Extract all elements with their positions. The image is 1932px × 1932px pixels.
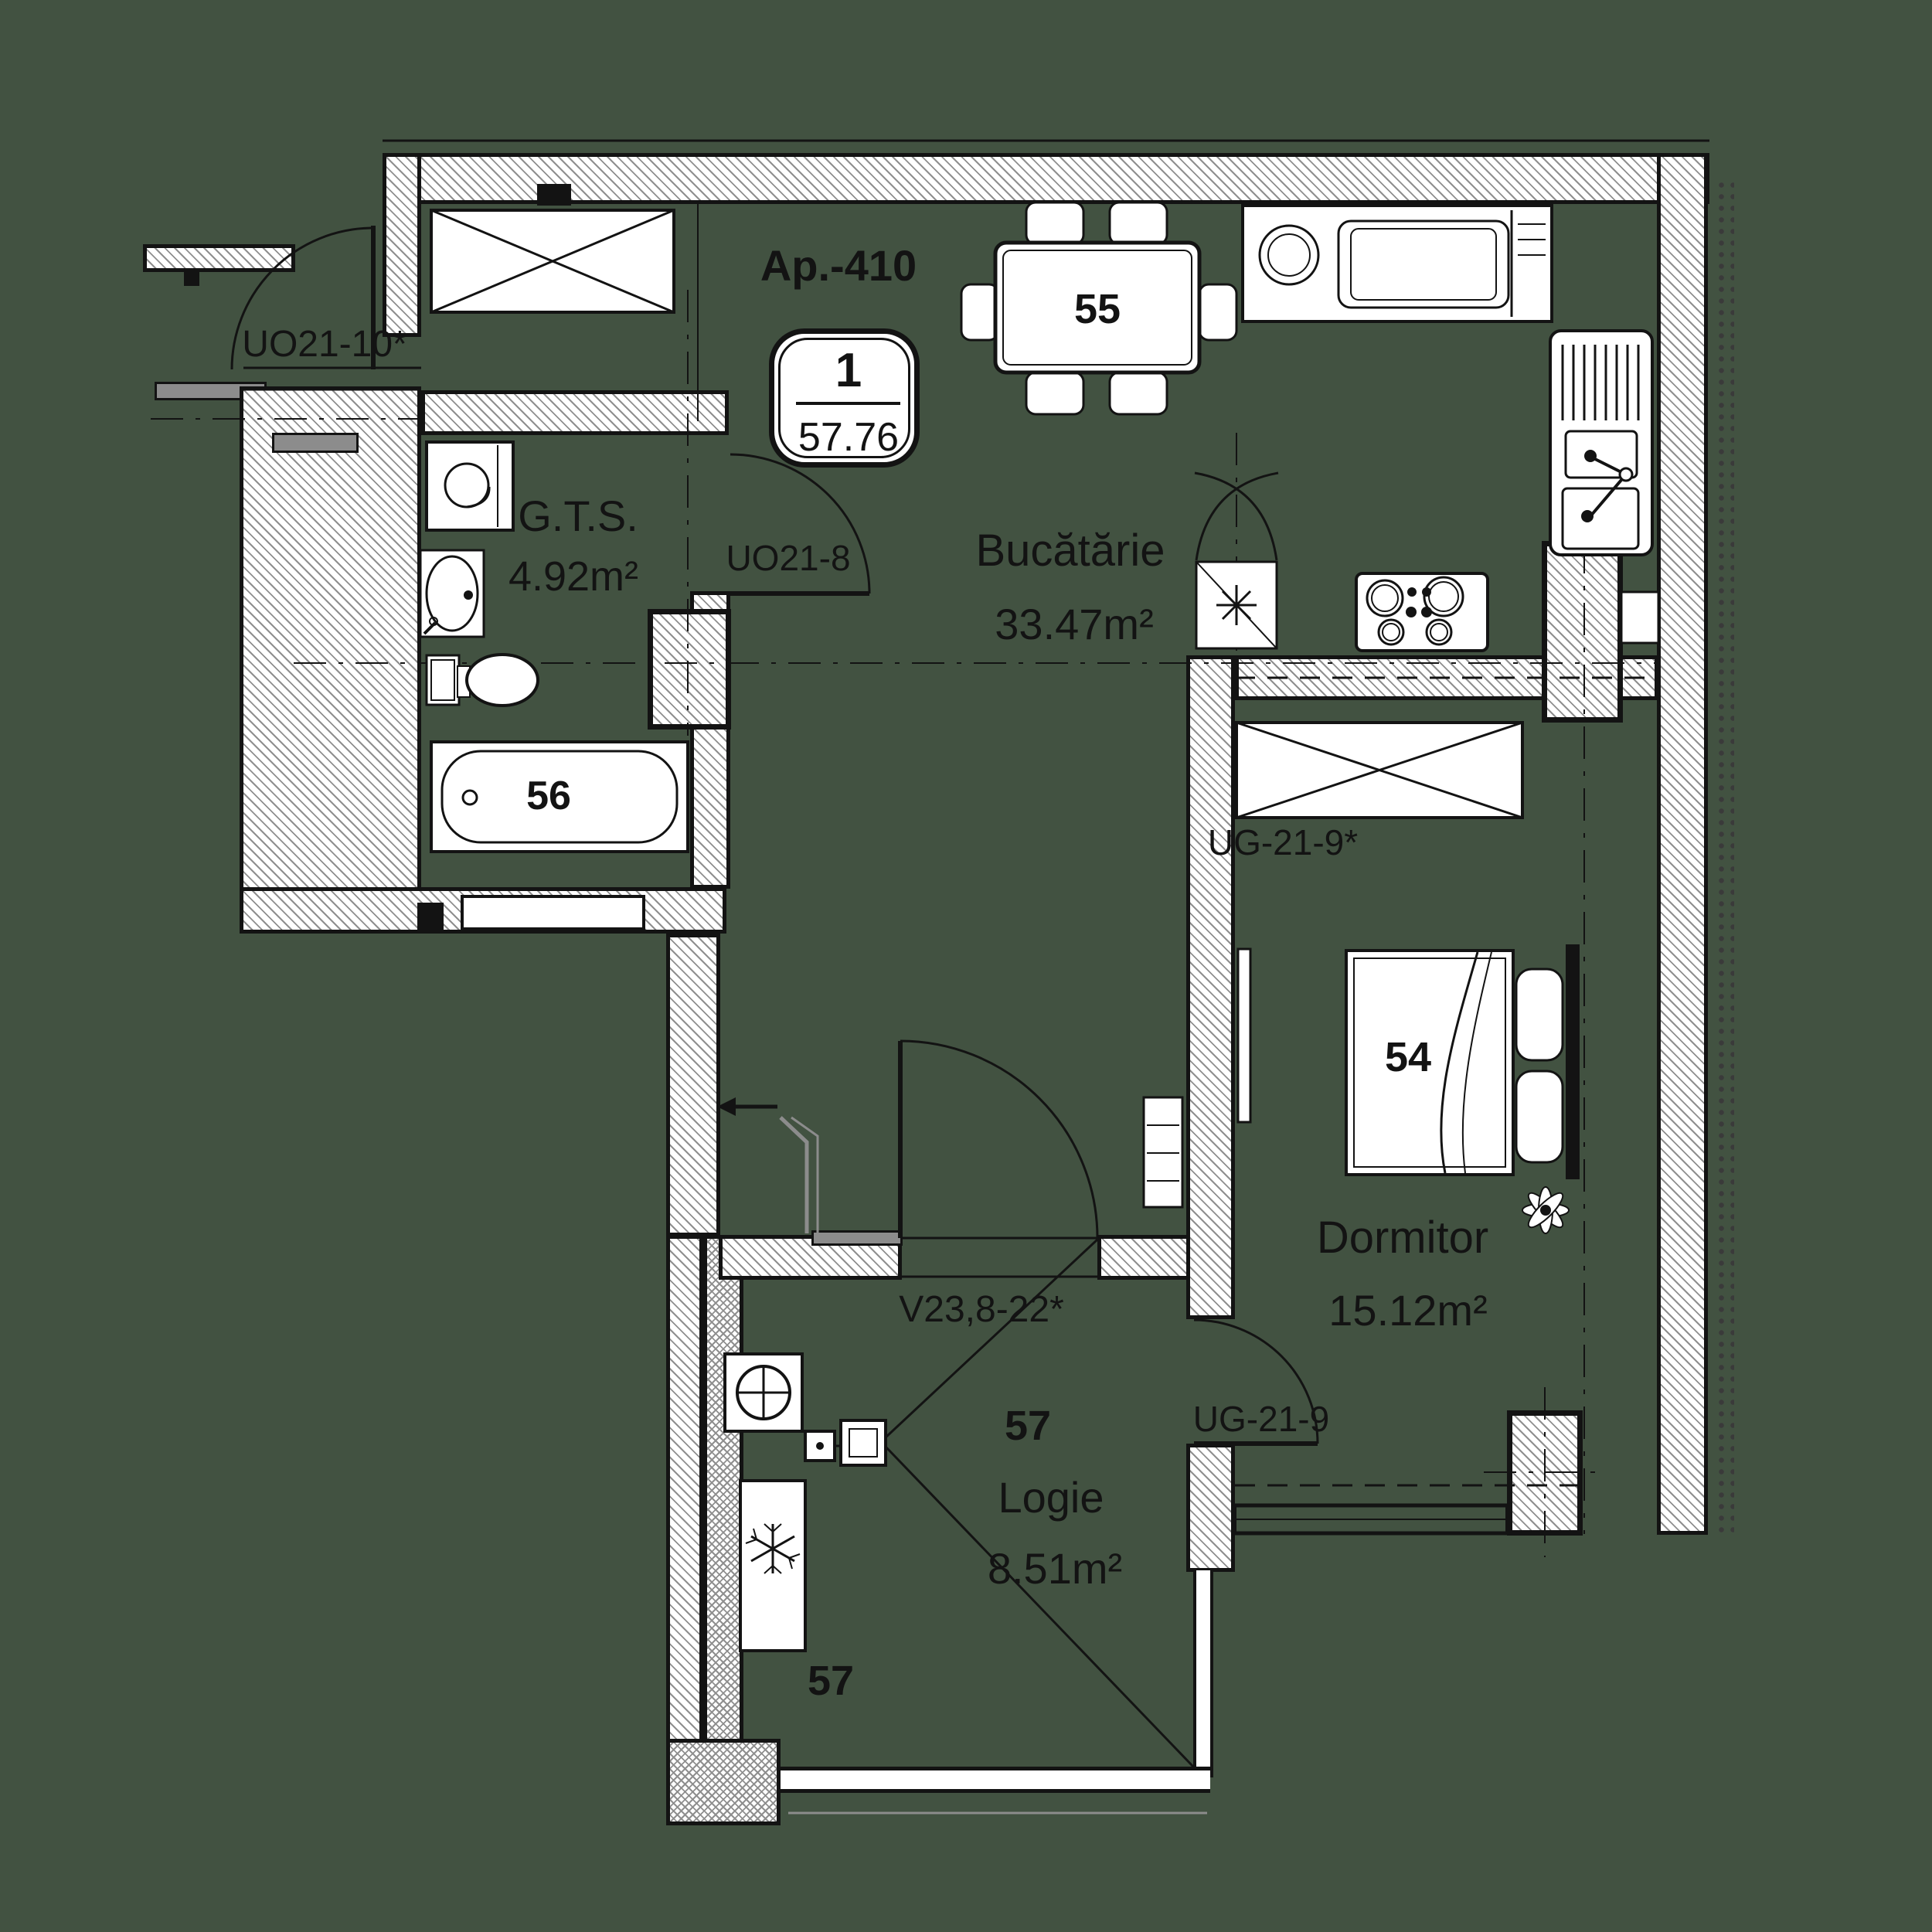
plan-linework	[0, 0, 1932, 1932]
kitchen-counter-sink	[1243, 206, 1552, 321]
entry-door	[232, 226, 421, 389]
room-gts-area: 4.92m²	[509, 556, 638, 597]
bedroom-wardrobe	[1236, 723, 1522, 818]
table-number: 55	[1074, 288, 1121, 330]
wall-sink-unit	[1550, 331, 1652, 555]
ac-unit	[740, 1481, 805, 1651]
room-loggia-name: Logie	[998, 1476, 1104, 1519]
door-label-bathroom: UO21-8	[726, 540, 850, 576]
column-notch	[1621, 592, 1658, 643]
loggia-number-lower: 57	[808, 1660, 854, 1702]
door-label-entry: UO21-10*	[242, 326, 406, 363]
stove	[1356, 573, 1488, 651]
floor-plan-apartment-410: Ap.-410 1 57.76 G.T.S. 4.92m² Bucătărie …	[0, 0, 1932, 1932]
door-label-bedroom: UG-21-9*	[1208, 825, 1358, 860]
bathroom-sink	[420, 550, 484, 637]
loggia-door	[900, 1041, 1097, 1277]
room-gts-name: G.T.S.	[518, 495, 638, 538]
bed-number: 54	[1385, 1036, 1431, 1078]
room-kitchen-area: 33.47m²	[995, 603, 1153, 646]
tv	[1238, 949, 1250, 1122]
apartment-title: Ap.-410	[760, 244, 917, 287]
bathroom-wall-inset	[417, 896, 644, 930]
room-bedroom-area: 15.12m²	[1328, 1289, 1487, 1332]
window-label-loggia: V23,8-22*	[899, 1291, 1064, 1328]
bathtub-number: 56	[526, 776, 571, 816]
vent-icon	[725, 1354, 802, 1431]
hall-wardrobe	[431, 184, 674, 312]
bedroom-window	[1235, 1485, 1584, 1533]
loggia-number-upper: 57	[1005, 1405, 1051, 1447]
area-badge: 1 57.76	[769, 328, 920, 468]
radiator	[1144, 1097, 1182, 1207]
badge-total-area: 57.76	[798, 417, 899, 457]
area-badge-divider	[796, 402, 900, 405]
entry-arrow-icon	[717, 1097, 777, 1116]
room-kitchen-name: Bucătărie	[975, 529, 1165, 573]
badge-rooms-count: 1	[835, 347, 862, 395]
washing-machine	[427, 442, 513, 530]
room-loggia-area: 8.51m²	[988, 1547, 1122, 1590]
door-label-bedroom-loggia: UG-21-9	[1193, 1401, 1329, 1437]
toilet	[427, 655, 538, 706]
room-bedroom-name: Dormitor	[1317, 1216, 1488, 1260]
bed	[1346, 944, 1580, 1179]
plant-icon	[1522, 1187, 1569, 1233]
